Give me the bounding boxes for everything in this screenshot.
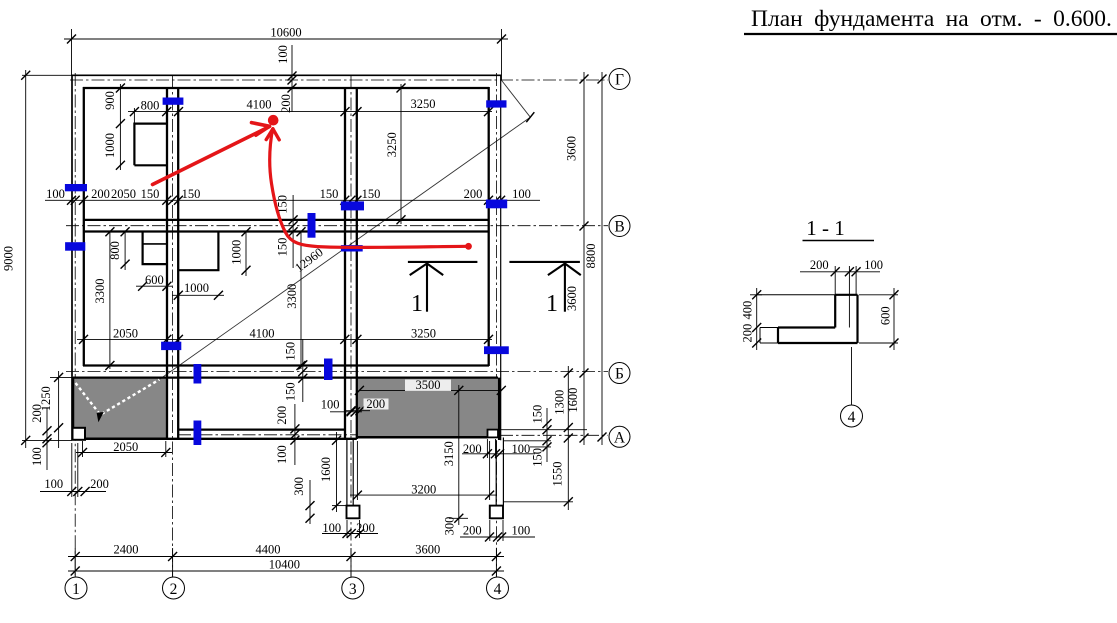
- svg-text:150: 150: [320, 187, 339, 201]
- svg-text:2050: 2050: [111, 187, 136, 201]
- svg-text:200: 200: [366, 397, 385, 411]
- svg-text:3200: 3200: [411, 483, 436, 497]
- svg-text:1: 1: [72, 581, 80, 598]
- svg-text:1: 1: [411, 291, 423, 317]
- svg-text:Г: Г: [615, 72, 624, 89]
- svg-text:200: 200: [90, 477, 109, 491]
- svg-text:800: 800: [108, 241, 122, 260]
- svg-text:150: 150: [362, 187, 381, 201]
- svg-text:1: 1: [546, 291, 558, 317]
- svg-text:10600: 10600: [270, 26, 301, 40]
- svg-text:3600: 3600: [415, 543, 440, 557]
- svg-text:4: 4: [848, 409, 856, 426]
- svg-text:300: 300: [292, 477, 306, 496]
- svg-text:150: 150: [284, 382, 298, 401]
- svg-text:150: 150: [284, 342, 298, 361]
- svg-text:600: 600: [145, 273, 164, 287]
- svg-text:3300: 3300: [93, 279, 107, 304]
- svg-text:900: 900: [103, 91, 117, 110]
- svg-text:200: 200: [464, 187, 483, 201]
- svg-text:150: 150: [531, 405, 545, 424]
- svg-text:1000: 1000: [103, 133, 117, 158]
- svg-text:200: 200: [463, 442, 482, 456]
- svg-text:200: 200: [30, 404, 44, 423]
- svg-text:200: 200: [275, 406, 289, 425]
- svg-text:3250: 3250: [385, 132, 399, 157]
- svg-text:3300: 3300: [285, 284, 299, 309]
- svg-text:2050: 2050: [113, 440, 138, 454]
- svg-text:100: 100: [512, 442, 531, 456]
- svg-text:100: 100: [322, 521, 341, 535]
- svg-text:4100: 4100: [247, 98, 272, 112]
- svg-text:150: 150: [276, 238, 290, 257]
- svg-text:400: 400: [741, 301, 755, 320]
- svg-text:1000: 1000: [229, 240, 243, 265]
- svg-text:200: 200: [463, 524, 482, 538]
- svg-text:200: 200: [356, 521, 375, 535]
- svg-text:1 - 1: 1 - 1: [806, 216, 845, 240]
- svg-text:200: 200: [741, 324, 755, 343]
- svg-text:100: 100: [30, 447, 44, 466]
- svg-text:Б: Б: [615, 366, 624, 383]
- svg-text:2050: 2050: [113, 327, 138, 341]
- svg-text:3250: 3250: [411, 327, 436, 341]
- svg-text:3500: 3500: [416, 378, 441, 392]
- svg-text:100: 100: [44, 477, 63, 491]
- svg-text:300: 300: [443, 517, 457, 536]
- svg-text:8800: 8800: [584, 244, 598, 269]
- svg-text:В: В: [614, 219, 624, 236]
- svg-text:200: 200: [810, 258, 829, 272]
- svg-text:4100: 4100: [250, 327, 275, 341]
- svg-text:150: 150: [531, 448, 545, 467]
- svg-text:3600: 3600: [565, 286, 579, 311]
- svg-text:10400: 10400: [269, 558, 300, 572]
- svg-text:4: 4: [494, 581, 502, 598]
- svg-text:100: 100: [276, 45, 290, 64]
- svg-text:2400: 2400: [114, 543, 139, 557]
- svg-text:100: 100: [46, 187, 65, 201]
- svg-text:9000: 9000: [2, 246, 16, 271]
- svg-text:3150: 3150: [442, 441, 456, 466]
- svg-text:1000: 1000: [184, 281, 209, 295]
- svg-text:200: 200: [279, 94, 293, 113]
- svg-text:800: 800: [141, 99, 160, 113]
- svg-text:600: 600: [879, 306, 893, 325]
- svg-text:План фундамента на отм. - 0.60: План фундамента на отм. - 0.600.: [751, 6, 1112, 32]
- svg-text:100: 100: [512, 187, 531, 201]
- svg-text:100: 100: [864, 258, 883, 272]
- svg-text:4400: 4400: [256, 543, 281, 557]
- svg-text:1300: 1300: [553, 390, 567, 415]
- svg-text:100: 100: [275, 445, 289, 464]
- svg-text:1600: 1600: [566, 388, 580, 413]
- svg-text:200: 200: [91, 187, 110, 201]
- svg-text:2: 2: [170, 581, 178, 598]
- svg-text:3: 3: [349, 581, 357, 598]
- svg-text:1550: 1550: [550, 462, 564, 487]
- svg-text:100: 100: [321, 398, 340, 412]
- svg-text:3600: 3600: [564, 136, 578, 161]
- svg-text:3250: 3250: [411, 97, 436, 111]
- svg-text:100: 100: [512, 524, 531, 538]
- svg-text:150: 150: [141, 187, 160, 201]
- svg-text:А: А: [614, 429, 626, 446]
- svg-text:1600: 1600: [319, 457, 333, 482]
- svg-text:150: 150: [182, 187, 201, 201]
